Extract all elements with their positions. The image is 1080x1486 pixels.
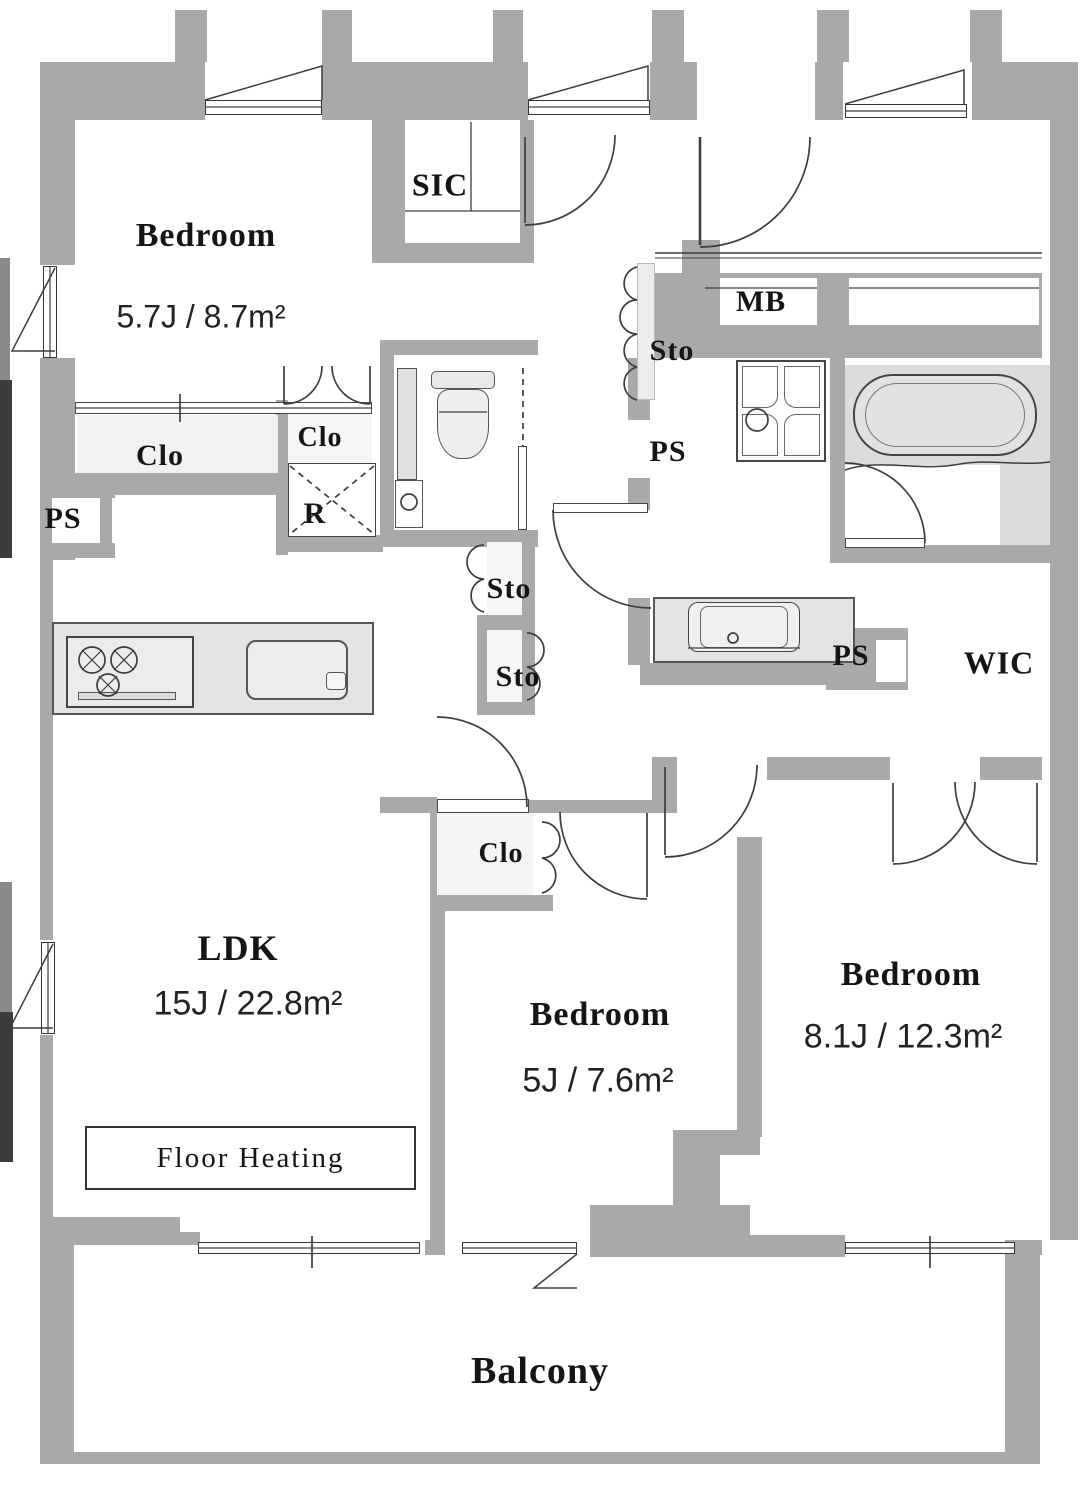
- bedroom3-size: 8.1J / 12.3m²: [804, 1018, 1002, 1057]
- storage-label-3: Sto: [496, 660, 541, 694]
- sic-label: SIC: [412, 167, 468, 204]
- bedroom1-label: Bedroom: [136, 217, 276, 255]
- floor-heating-label: Floor Heating: [157, 1142, 345, 1175]
- floor-heating-box: Floor Heating: [85, 1126, 416, 1190]
- bedroom2-size: 5J / 7.6m²: [522, 1062, 673, 1101]
- bedroom1-size: 5.7J / 8.7m²: [117, 299, 286, 336]
- bedroom3-label: Bedroom: [841, 956, 981, 994]
- storage-label-1: Sto: [650, 334, 695, 368]
- wic-label: WIC: [964, 645, 1035, 682]
- meter-box-label: MB: [736, 285, 786, 319]
- entrance-door-arc: [700, 137, 810, 247]
- ldk-size: 15J / 22.8m²: [154, 985, 343, 1024]
- pipe-space-label-3: PS: [832, 639, 869, 673]
- closet-label-1: Clo: [136, 439, 184, 473]
- storage-label-2: Sto: [487, 572, 532, 606]
- floor-plan: Floor Heating Bedroom 5.7J / 8.7m² SIC M…: [0, 0, 1080, 1486]
- pipe-space-label-2: PS: [649, 435, 686, 469]
- pipe-space-label-1: PS: [44, 502, 81, 536]
- closet-label-2: Clo: [298, 422, 343, 454]
- ldk-label: LDK: [197, 927, 278, 969]
- balcony-label: Balcony: [471, 1349, 609, 1393]
- refrigerator-label: R: [304, 497, 327, 531]
- bedroom2-label: Bedroom: [530, 996, 670, 1034]
- closet-label-3: Clo: [479, 838, 524, 870]
